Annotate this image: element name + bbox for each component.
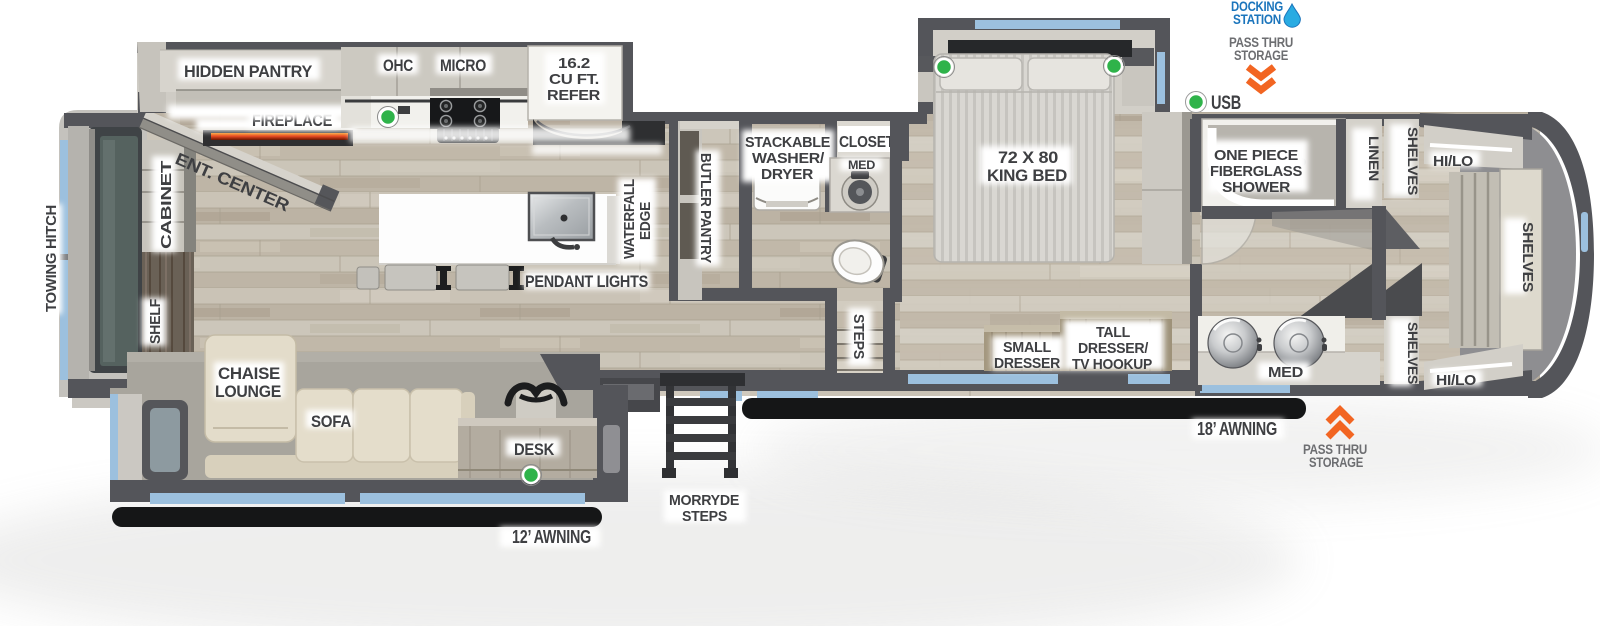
svg-text:TV HOOKUP: TV HOOKUP [1072, 356, 1152, 373]
svg-text:DRYER: DRYER [761, 166, 813, 183]
svg-text:MORRYDE: MORRYDE [669, 492, 739, 509]
svg-text:SHELVES: SHELVES [1405, 127, 1421, 195]
svg-text:STORAGE: STORAGE [1309, 455, 1363, 470]
svg-text:SHELVES: SHELVES [1519, 222, 1536, 292]
svg-text:BUTLER PANTRY: BUTLER PANTRY [697, 153, 714, 263]
svg-text:ONE PIECE: ONE PIECE [1214, 147, 1298, 164]
svg-text:TALL: TALL [1096, 324, 1130, 341]
svg-text:DRESSER: DRESSER [994, 355, 1060, 372]
svg-text:STEPS: STEPS [682, 508, 727, 525]
svg-text:LINEN: LINEN [1366, 136, 1382, 181]
svg-text:KING BED: KING BED [987, 166, 1067, 185]
svg-text:SHELF: SHELF [147, 299, 164, 344]
svg-text:18’ AWNING: 18’ AWNING [1197, 419, 1277, 439]
svg-text:HI/LO: HI/LO [1433, 153, 1474, 170]
svg-text:EDGE: EDGE [637, 202, 654, 240]
svg-text:WASHER/: WASHER/ [752, 150, 825, 167]
svg-text:SHOWER: SHOWER [1222, 179, 1290, 196]
svg-text:PENDANT LIGHTS: PENDANT LIGHTS [525, 272, 648, 291]
svg-text:HI/LO: HI/LO [1436, 372, 1477, 389]
svg-text:CHAISE: CHAISE [218, 364, 280, 383]
svg-text:LOUNGE: LOUNGE [215, 382, 281, 401]
svg-text:SOFA: SOFA [311, 412, 351, 431]
svg-text:16.2: 16.2 [558, 55, 590, 72]
svg-text:MED: MED [848, 158, 876, 172]
svg-text:WATERFALL: WATERFALL [621, 179, 638, 259]
svg-text:CU FT.: CU FT. [549, 71, 599, 88]
svg-text:12’ AWNING: 12’ AWNING [512, 527, 591, 547]
svg-text:HIDDEN PANTRY: HIDDEN PANTRY [184, 62, 313, 81]
svg-text:TOWING HITCH: TOWING HITCH [43, 205, 60, 312]
svg-text:SMALL: SMALL [1003, 339, 1051, 356]
svg-text:DESK: DESK [514, 440, 555, 459]
svg-text:STACKABLE: STACKABLE [745, 134, 830, 151]
svg-text:DRESSER/: DRESSER/ [1078, 340, 1149, 357]
svg-text:MED: MED [1268, 364, 1303, 381]
svg-text:SHELVES: SHELVES [1405, 322, 1421, 384]
svg-text:72 X 80: 72 X 80 [998, 148, 1058, 167]
svg-text:OHC: OHC [383, 56, 413, 75]
svg-text:STEPS: STEPS [850, 314, 867, 359]
svg-text:CLOSET: CLOSET [839, 134, 894, 151]
svg-text:STORAGE: STORAGE [1234, 48, 1288, 63]
svg-text:USB: USB [1211, 93, 1241, 114]
svg-text:MICRO: MICRO [440, 56, 486, 75]
svg-text:CABINET: CABINET [158, 161, 175, 249]
svg-text:REFER: REFER [547, 87, 600, 104]
svg-text:STATION: STATION [1233, 12, 1281, 27]
svg-text:FIBERGLASS: FIBERGLASS [1210, 163, 1302, 180]
